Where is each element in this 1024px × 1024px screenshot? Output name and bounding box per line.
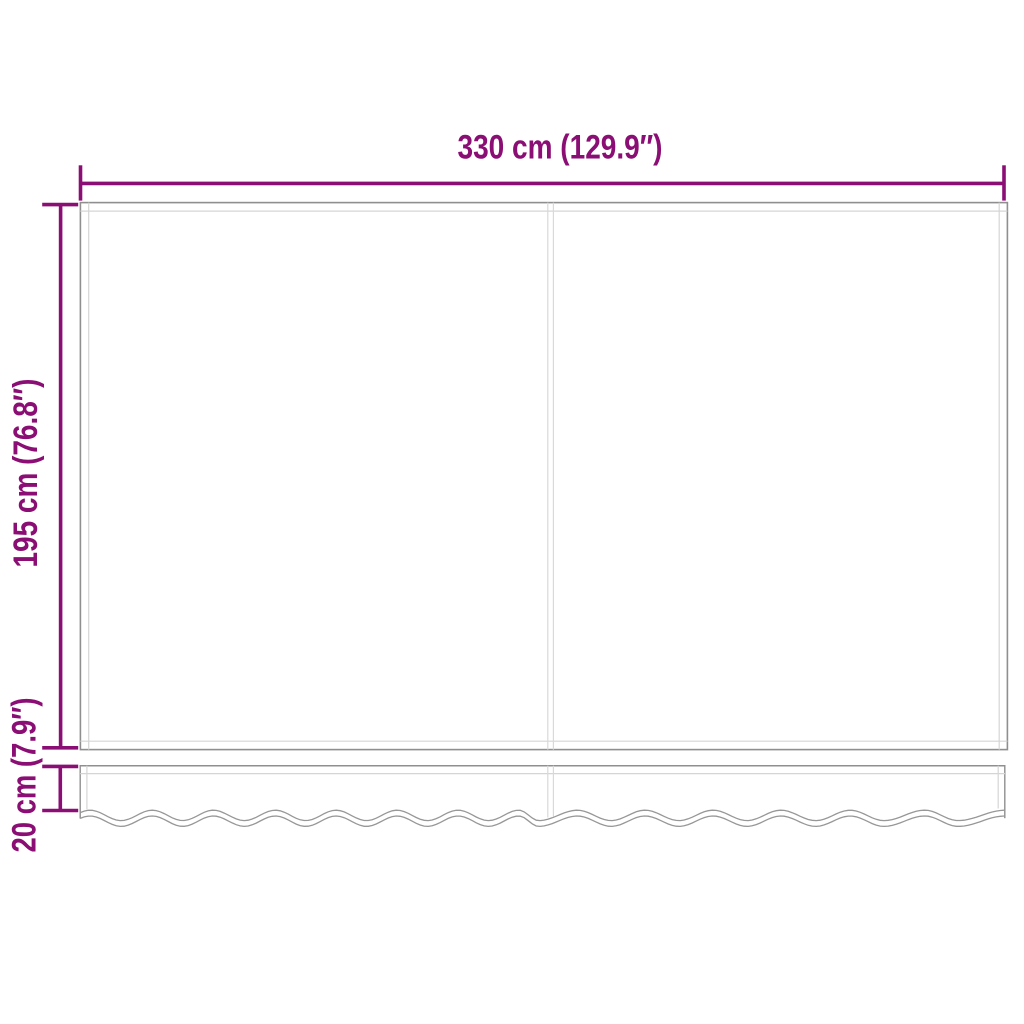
svg-text:20 cm (7.9″): 20 cm (7.9″) (6, 698, 44, 853)
svg-text:195 cm (76.8″): 195 cm (76.8″) (7, 379, 45, 568)
svg-text:330 cm (129.9″): 330 cm (129.9″) (458, 129, 663, 167)
